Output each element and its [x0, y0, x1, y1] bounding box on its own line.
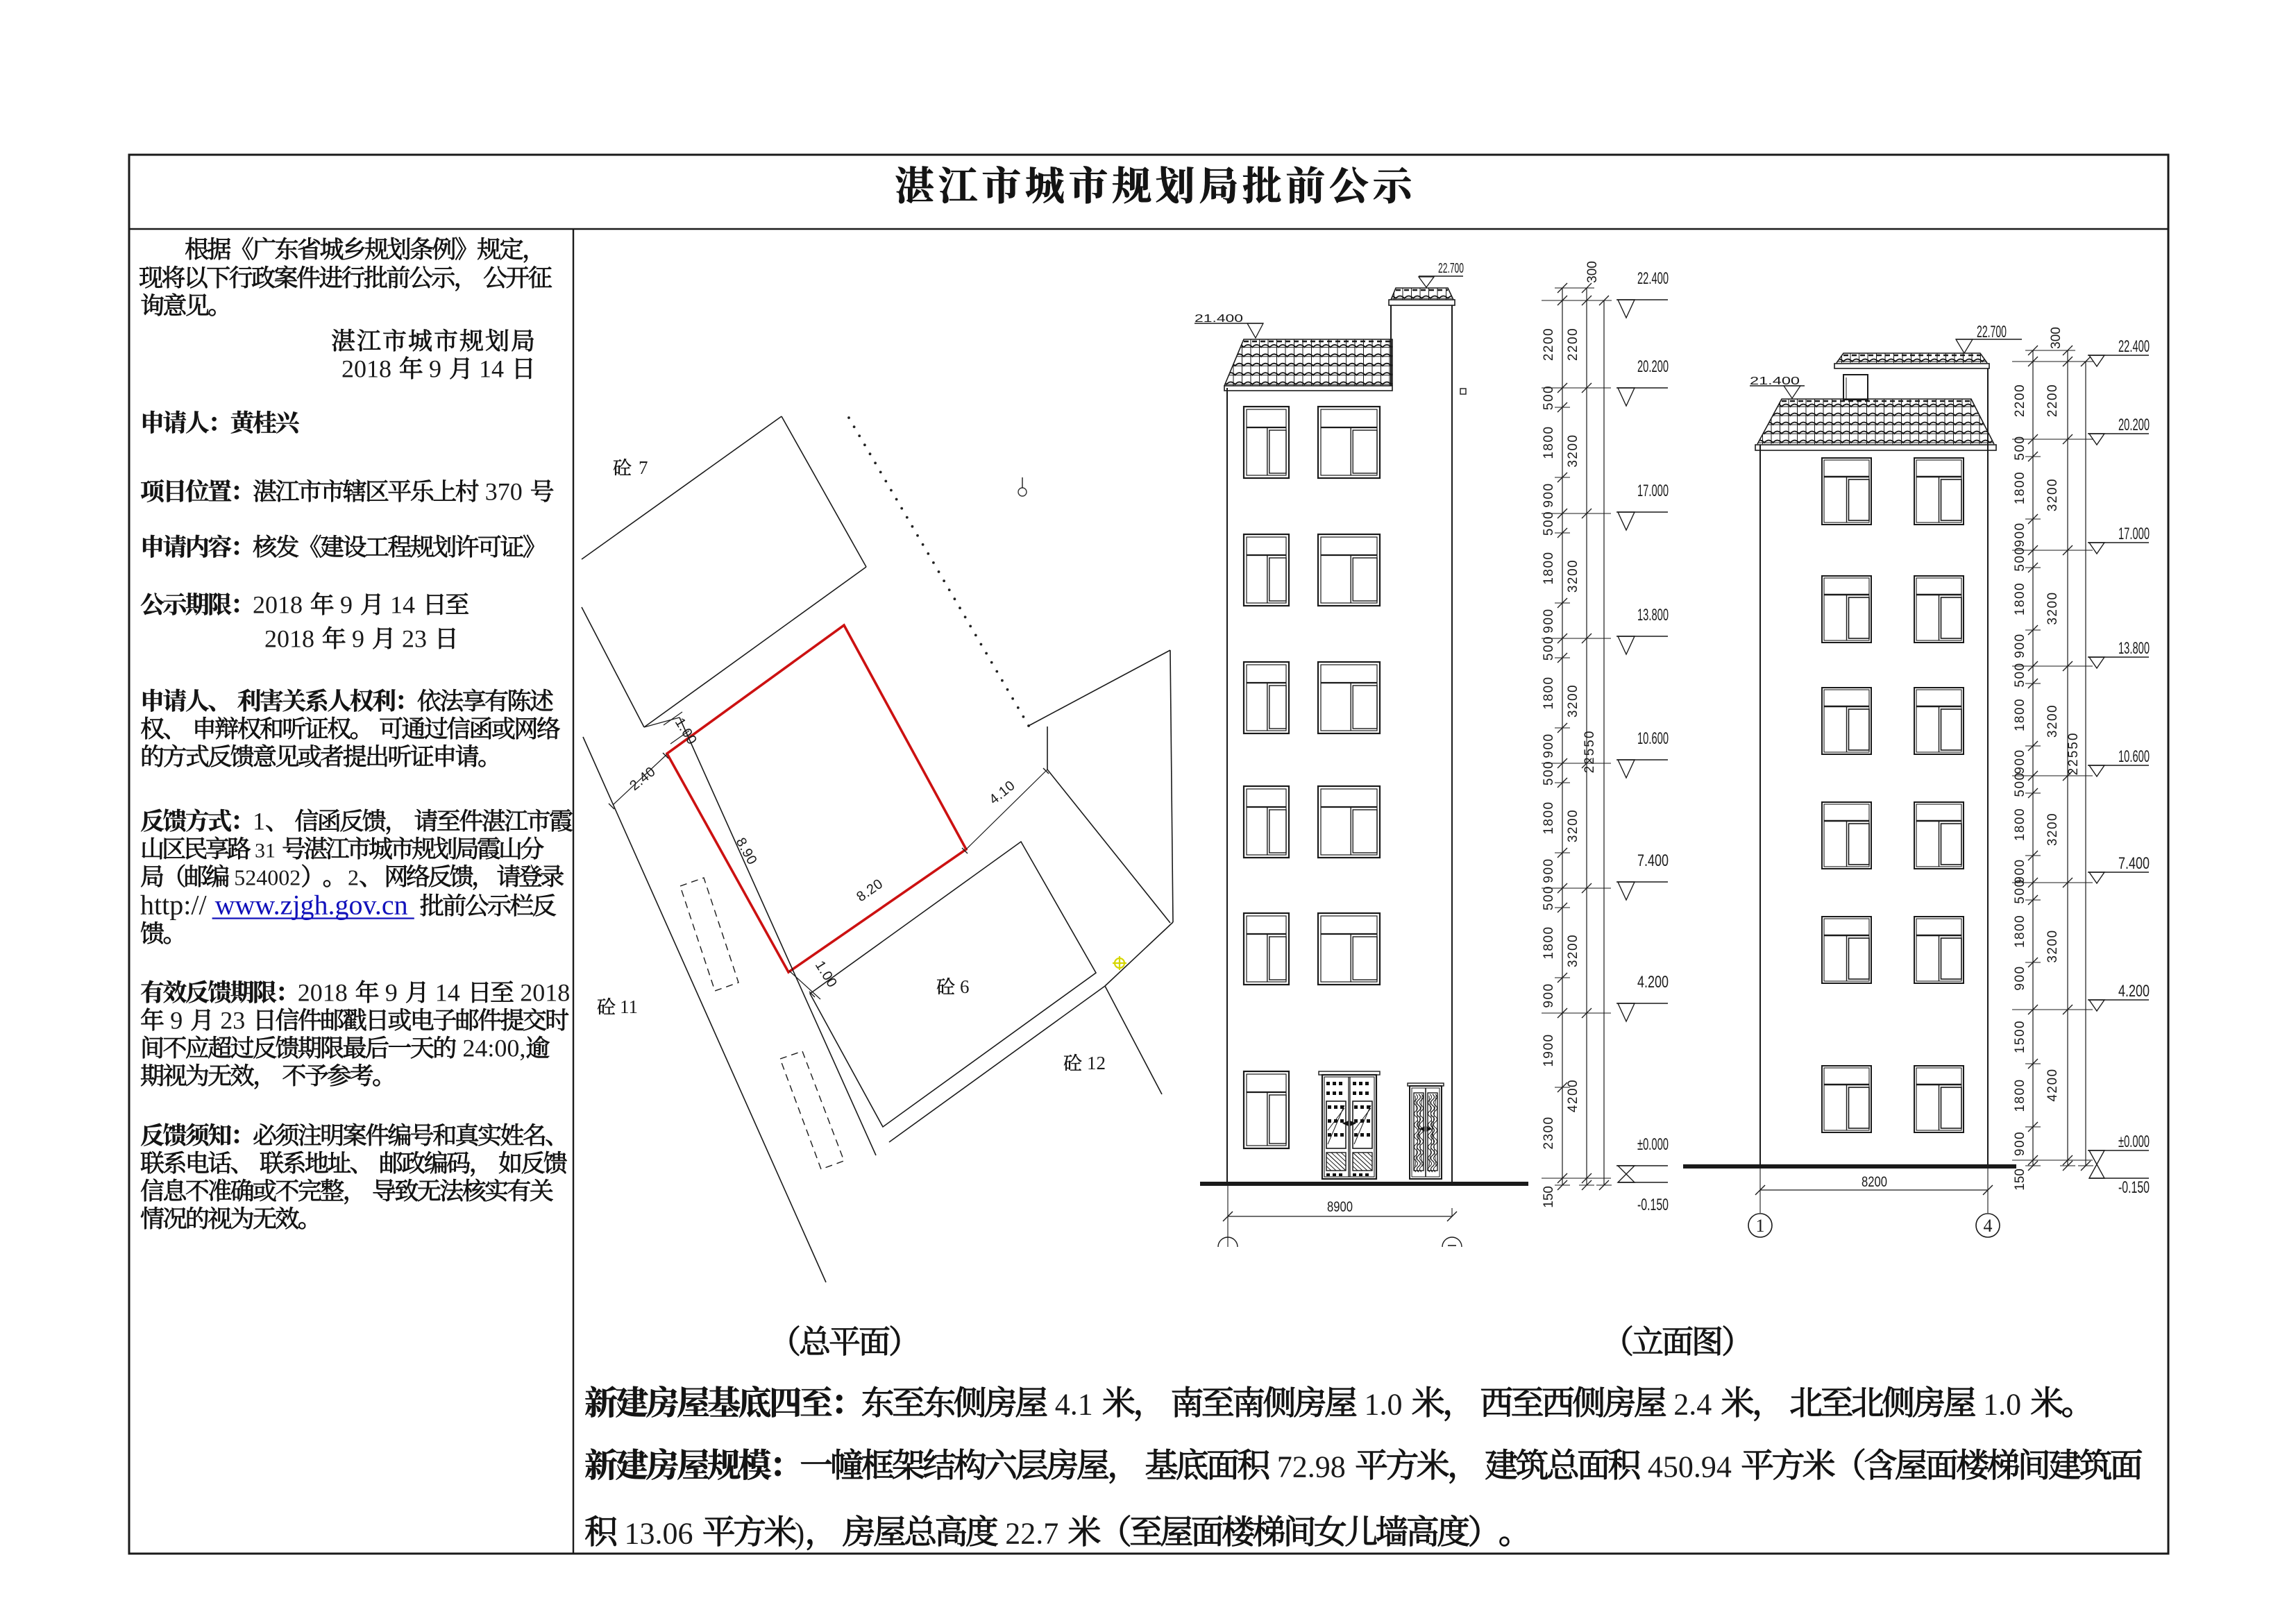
svg-text:500: 500	[2013, 662, 2027, 687]
svg-text:2200: 2200	[2045, 384, 2060, 417]
svg-text:14: 14	[390, 591, 415, 619]
svg-text:900: 900	[2013, 633, 2027, 658]
svg-text:9: 9	[170, 1007, 183, 1035]
svg-text:2200: 2200	[2013, 384, 2027, 417]
svg-text:4200: 4200	[1566, 1079, 1580, 1112]
svg-text:1800: 1800	[2013, 698, 2027, 731]
svg-text:900: 900	[1542, 608, 1556, 633]
svg-text:22.400: 22.400	[1637, 269, 1669, 288]
svg-text:): )	[795, 1516, 805, 1550]
svg-text:8200: 8200	[1862, 1174, 1887, 1190]
svg-text:370: 370	[485, 478, 523, 506]
svg-text:500: 500	[2013, 435, 2027, 460]
svg-text:3200: 3200	[2045, 478, 2060, 511]
svg-text:22.400: 22.400	[2118, 337, 2150, 356]
svg-text:12: 12	[1087, 1053, 1106, 1073]
svg-text:21.400: 21.400	[1750, 375, 1800, 387]
svg-text:-0.150: -0.150	[2118, 1178, 2150, 1197]
svg-text:3200: 3200	[1566, 559, 1580, 593]
svg-text:22.700: 22.700	[1977, 323, 2007, 341]
svg-text:4.200: 4.200	[2118, 982, 2150, 1001]
svg-text:1800: 1800	[1542, 676, 1556, 709]
svg-text:2200: 2200	[1566, 328, 1580, 361]
svg-text:900: 900	[2013, 749, 2027, 774]
svg-text:http://: http://	[140, 890, 207, 921]
svg-text:4.200: 4.200	[1637, 973, 1669, 992]
svg-text:7.400: 7.400	[1637, 851, 1669, 870]
svg-text:22.700: 22.700	[1438, 261, 1464, 276]
svg-text:22.7: 22.7	[1005, 1516, 1058, 1550]
svg-text:150: 150	[1542, 1186, 1556, 1208]
svg-text:31: 31	[255, 840, 276, 863]
svg-text:1: 1	[1756, 1216, 1765, 1236]
svg-text:1800: 1800	[2013, 1078, 2027, 1112]
svg-text:4.1: 4.1	[1055, 1387, 1093, 1421]
svg-text:900: 900	[1542, 858, 1556, 883]
svg-text:23: 23	[402, 625, 427, 653]
svg-text:2018: 2018	[341, 355, 391, 383]
svg-text:524002: 524002	[234, 865, 301, 890]
svg-text:500: 500	[2013, 546, 2027, 571]
svg-text:500: 500	[1542, 885, 1556, 910]
svg-text:22550: 22550	[1582, 730, 1597, 774]
svg-text:20.200: 20.200	[2118, 416, 2150, 434]
svg-text:1800: 1800	[1542, 801, 1556, 834]
svg-text:1800: 1800	[1542, 926, 1556, 959]
svg-text:500: 500	[1542, 760, 1556, 785]
svg-text:300: 300	[1585, 261, 1600, 283]
svg-text:13.800: 13.800	[1637, 606, 1669, 624]
svg-text:900: 900	[1542, 482, 1556, 507]
svg-text:22550: 22550	[2066, 732, 2081, 776]
svg-text:17.000: 17.000	[2118, 525, 2150, 543]
svg-text:3200: 3200	[1566, 809, 1580, 842]
svg-text:1800: 1800	[2013, 582, 2027, 615]
svg-text:450.94: 450.94	[1648, 1450, 1732, 1484]
svg-text:7.400: 7.400	[2118, 854, 2150, 873]
svg-text:1.0: 1.0	[1365, 1387, 1403, 1421]
svg-text:1500: 1500	[2013, 1020, 2027, 1053]
svg-text:7: 7	[639, 457, 648, 478]
svg-text:900: 900	[1542, 733, 1556, 758]
svg-text:300: 300	[2049, 327, 2063, 349]
svg-text:2018: 2018	[298, 979, 348, 1007]
svg-text:9: 9	[429, 355, 441, 383]
svg-text:10.600: 10.600	[2118, 747, 2150, 766]
svg-text:4: 4	[1984, 1216, 1993, 1236]
svg-text:6: 6	[960, 976, 970, 997]
svg-text:500: 500	[2013, 878, 2027, 903]
svg-text:500: 500	[1542, 636, 1556, 661]
svg-text:13.06: 13.06	[625, 1516, 693, 1550]
svg-text:900: 900	[2013, 965, 2027, 990]
svg-text:900: 900	[2013, 522, 2027, 547]
svg-text:2018: 2018	[264, 625, 314, 653]
svg-text:2018: 2018	[253, 591, 303, 619]
svg-text:1800: 1800	[2013, 915, 2027, 948]
svg-text:72.98: 72.98	[1277, 1450, 1346, 1484]
svg-text:9: 9	[340, 591, 353, 619]
svg-text:17.000: 17.000	[1637, 482, 1669, 500]
svg-text:2018: 2018	[520, 979, 570, 1007]
svg-text:8900: 8900	[1327, 1199, 1353, 1215]
svg-text:1900: 1900	[1542, 1033, 1556, 1067]
svg-text:1800: 1800	[2013, 471, 2027, 504]
svg-text:11: 11	[620, 996, 638, 1017]
svg-text:900: 900	[1542, 983, 1556, 1008]
svg-text:900: 900	[2013, 1131, 2027, 1156]
svg-text:150: 150	[2013, 1169, 2027, 1191]
svg-text:500: 500	[2013, 772, 2027, 797]
svg-text:14: 14	[435, 979, 460, 1007]
svg-text:1: 1	[253, 808, 265, 835]
svg-text:3200: 3200	[2045, 929, 2060, 962]
svg-text:-0.150: -0.150	[1637, 1196, 1669, 1214]
svg-text:±0.000: ±0.000	[2118, 1132, 2150, 1151]
svg-text:500: 500	[1542, 385, 1556, 410]
svg-text:1800: 1800	[1542, 425, 1556, 459]
svg-text:9: 9	[385, 979, 398, 1007]
svg-text:1.0: 1.0	[1983, 1387, 2021, 1421]
svg-text:13.800: 13.800	[2118, 639, 2150, 658]
svg-text:4200: 4200	[2045, 1068, 2060, 1101]
svg-text:20.200: 20.200	[1637, 357, 1669, 376]
svg-text:500: 500	[1542, 511, 1556, 536]
svg-text:3200: 3200	[2045, 813, 2060, 846]
svg-text:23: 23	[220, 1007, 245, 1035]
svg-text:24:00,: 24:00,	[462, 1035, 525, 1062]
svg-text:1800: 1800	[2013, 808, 2027, 841]
svg-text:±0.000: ±0.000	[1637, 1135, 1669, 1154]
svg-text:2200: 2200	[1542, 328, 1556, 361]
svg-text:9: 9	[352, 625, 364, 653]
svg-text:www.zjgh.gov.cn: www.zjgh.gov.cn	[215, 890, 408, 921]
svg-text:3200: 3200	[1566, 434, 1580, 467]
svg-text:3200: 3200	[2045, 704, 2060, 738]
svg-text:14: 14	[479, 355, 504, 383]
svg-text:2: 2	[348, 865, 359, 890]
svg-text:3200: 3200	[1566, 934, 1580, 967]
svg-text:21.400: 21.400	[1195, 313, 1243, 325]
svg-text:2.4: 2.4	[1673, 1387, 1712, 1421]
svg-text:2300: 2300	[1542, 1116, 1556, 1149]
svg-text:1800: 1800	[1542, 551, 1556, 584]
svg-text:3200: 3200	[2045, 591, 2060, 624]
svg-text:10.600: 10.600	[1637, 729, 1669, 748]
svg-text:3200: 3200	[1566, 684, 1580, 717]
